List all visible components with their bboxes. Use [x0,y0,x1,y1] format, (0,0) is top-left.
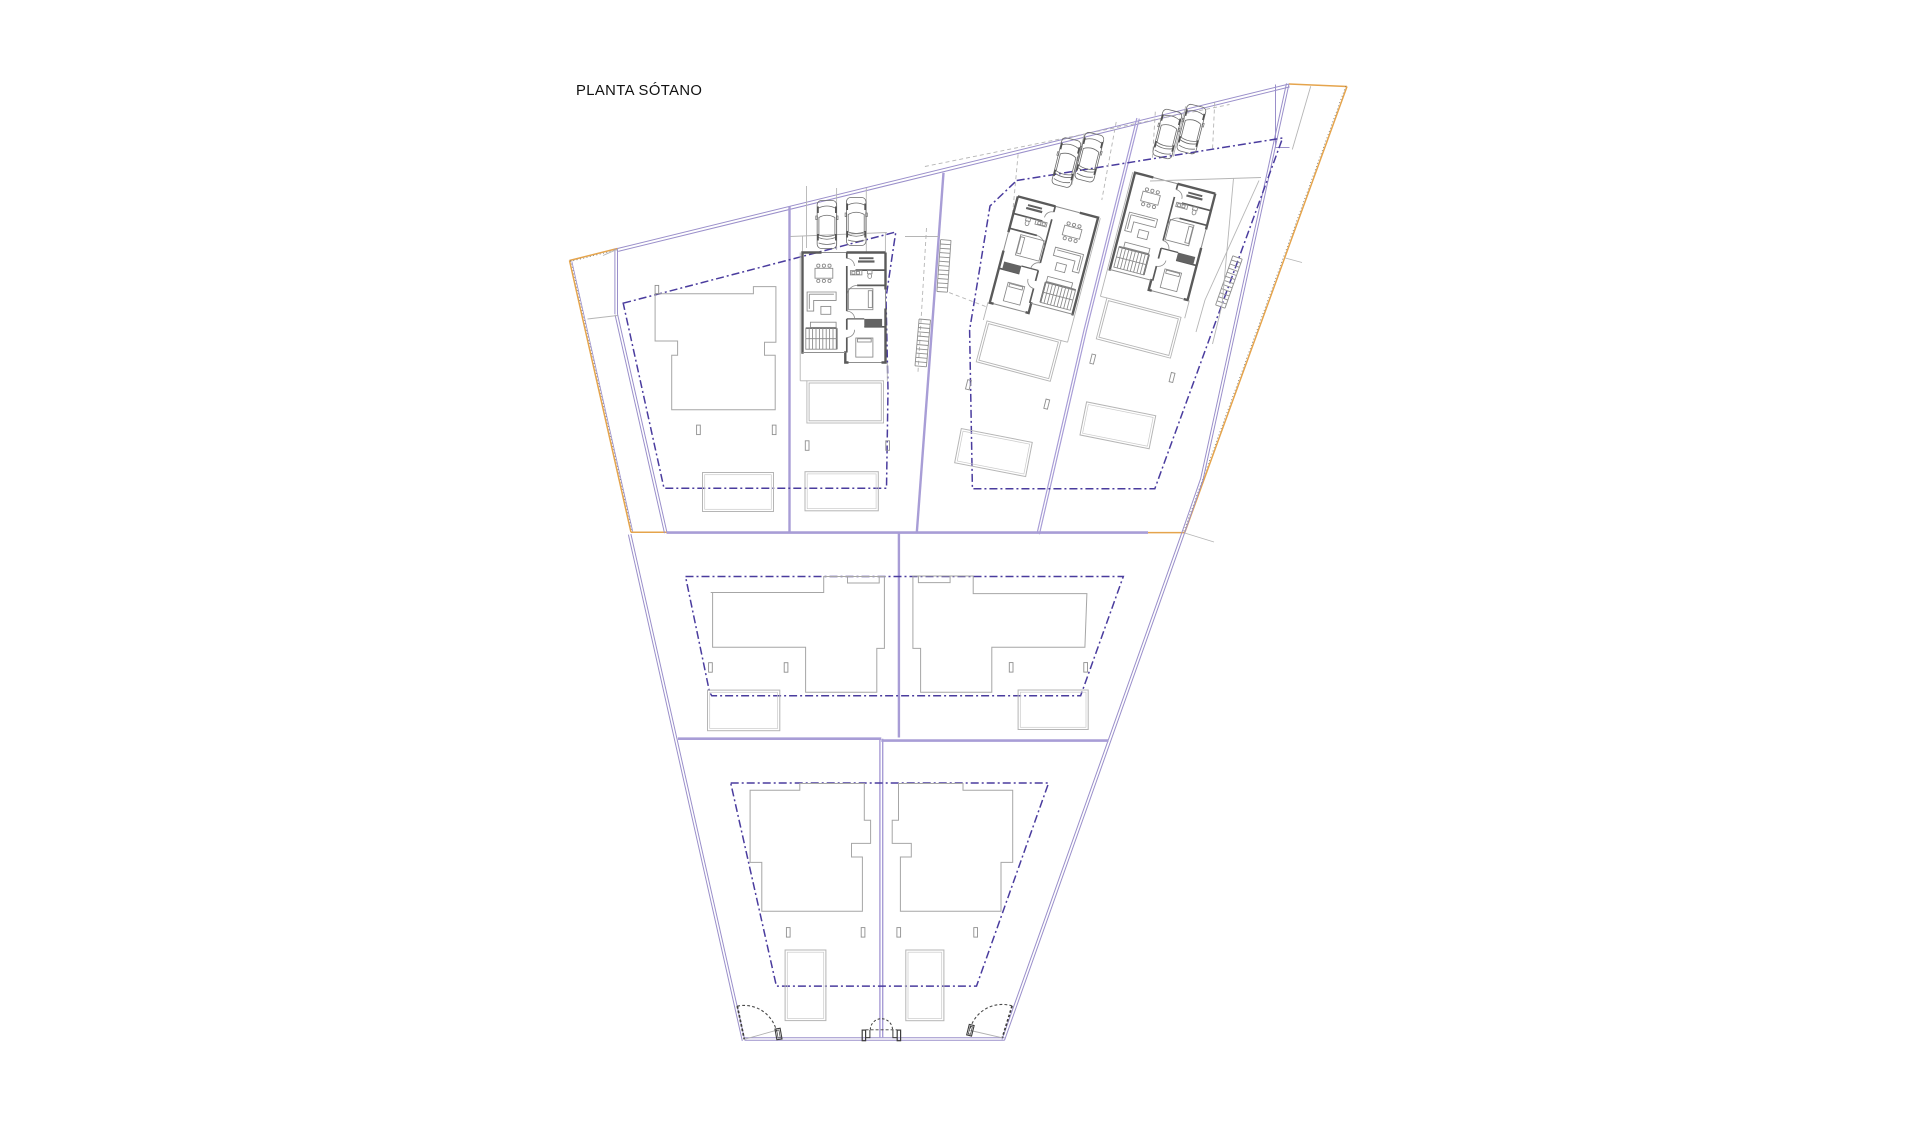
svg-text:PLANTA SÓTANO: PLANTA SÓTANO [576,82,702,99]
